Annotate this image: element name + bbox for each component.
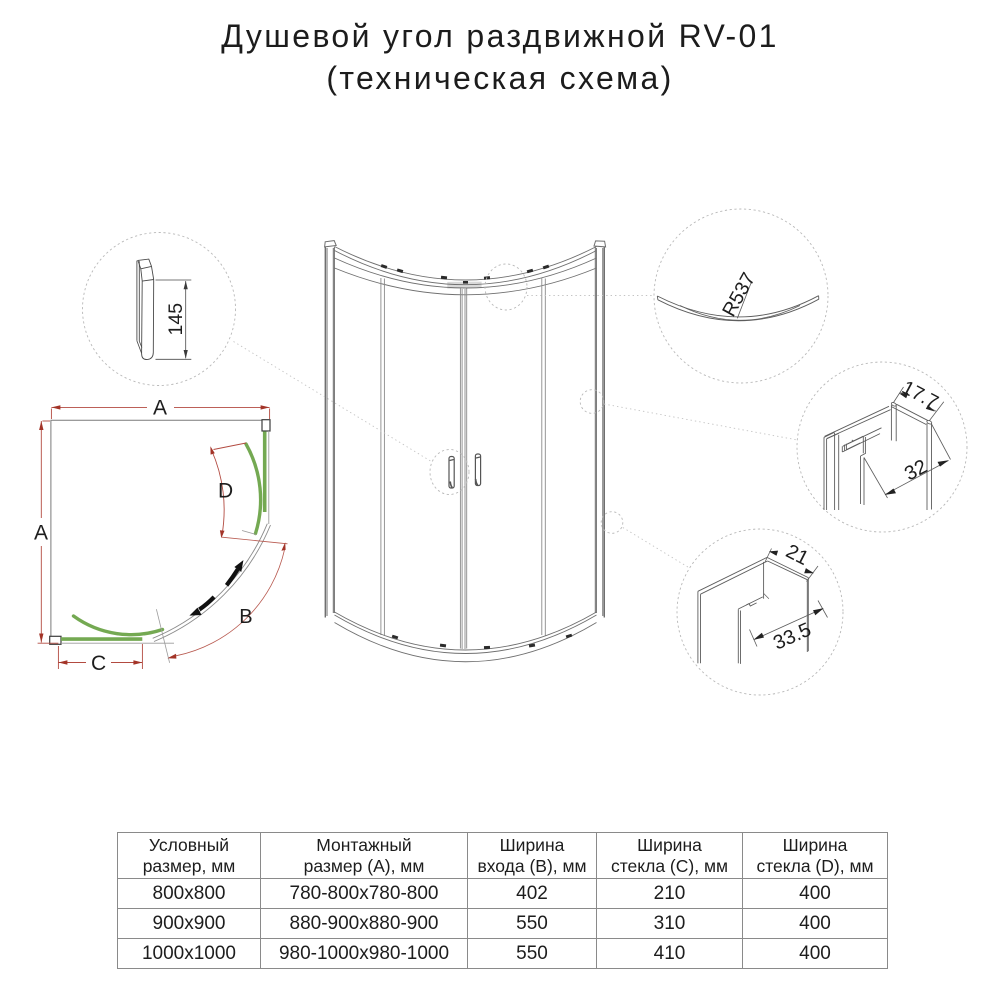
svg-text:C: C: [91, 652, 106, 675]
svg-text:B: B: [239, 606, 252, 628]
svg-text:21: 21: [782, 540, 812, 570]
svg-text:A: A: [153, 397, 167, 420]
svg-text:D: D: [218, 480, 233, 503]
svg-text:145: 145: [165, 303, 187, 336]
svg-text:R537: R537: [718, 269, 760, 320]
svg-text:32: 32: [901, 456, 931, 486]
svg-text:A: A: [34, 522, 48, 545]
